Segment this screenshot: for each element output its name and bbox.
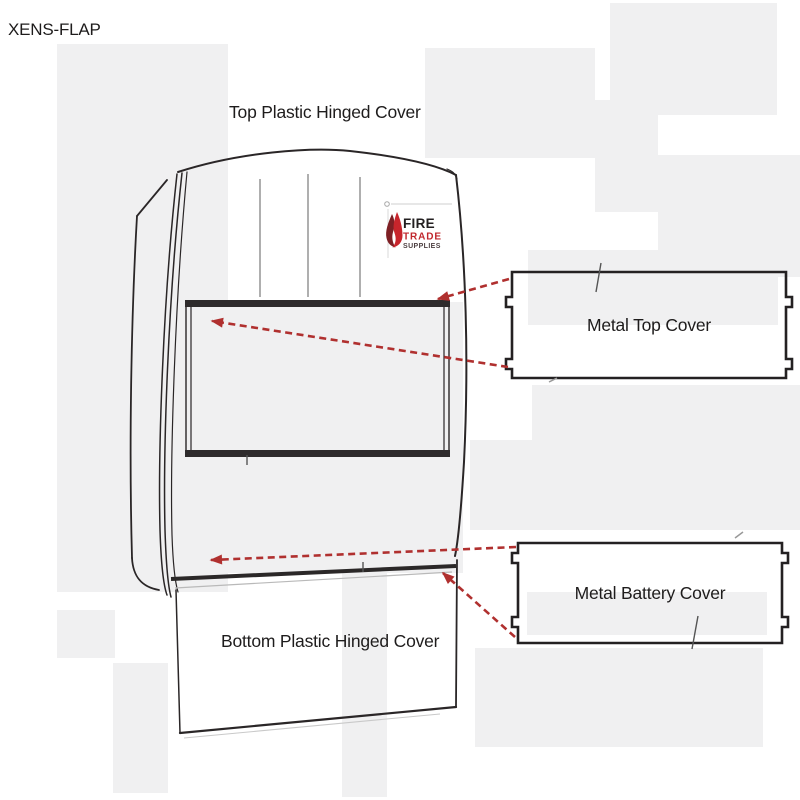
screw-hole-icon — [385, 202, 390, 207]
fire-trade-supplies-logo: FIRE TRADE SUPPLIES — [385, 202, 452, 258]
logo-word-supplies: SUPPLIES — [403, 243, 441, 250]
product-code-label: XENS-FLAP — [8, 20, 101, 40]
window-bottom-bar — [185, 450, 450, 457]
diagram-canvas: FIRE TRADE SUPPLIES XENS-FLAP Top Plasti… — [0, 0, 800, 800]
arrow-metal-top-cover-seat — [438, 279, 509, 299]
bottom-plastic-hinged-cover-label: Bottom Plastic Hinged Cover — [221, 631, 439, 652]
logo-word-fire: FIRE — [403, 216, 435, 231]
watermark-pattern — [57, 3, 800, 797]
window-top-bar — [185, 300, 450, 307]
logo-word-trade: TRADE — [403, 232, 442, 243]
top-plastic-hinged-cover-label: Top Plastic Hinged Cover — [229, 102, 421, 123]
vent-slots — [260, 174, 360, 297]
metal-battery-cover-label: Metal Battery Cover — [512, 583, 788, 604]
flame-icon — [386, 212, 402, 248]
metal-top-cover-label: Metal Top Cover — [512, 315, 786, 336]
arrow-metal-battery-cover-seat — [443, 573, 515, 637]
